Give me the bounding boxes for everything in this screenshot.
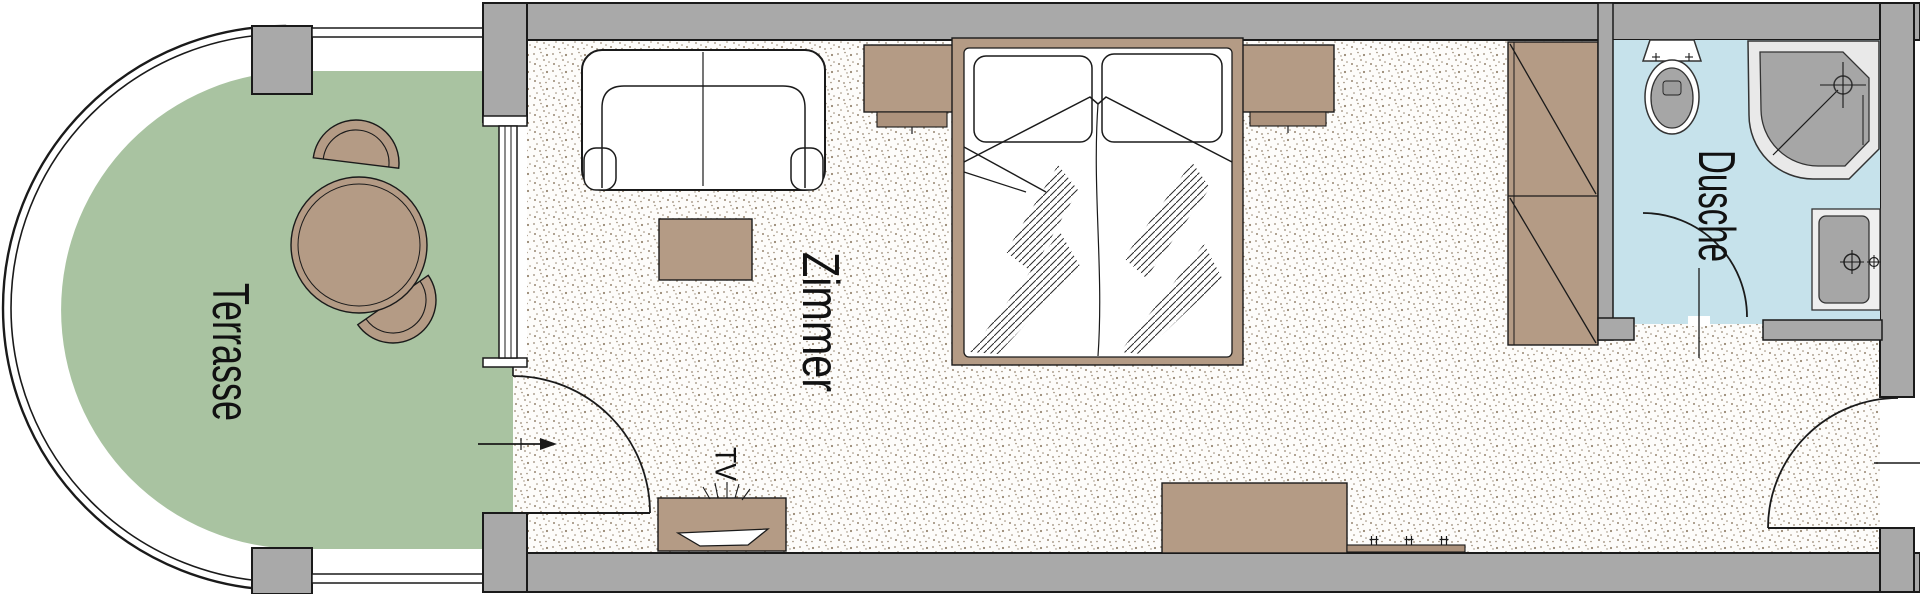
toilet: [1643, 40, 1701, 134]
nightstand-left: [864, 45, 960, 134]
bottom-wall: [483, 553, 1920, 592]
pillow-left: [974, 56, 1092, 142]
terrace: Terrasse: [3, 26, 513, 594]
west-pier-bottom: [483, 513, 527, 592]
terrace-label: Terrasse: [201, 283, 259, 421]
right-wall: [1880, 3, 1914, 397]
terrace-pier-bottom: [252, 548, 312, 594]
terrace-table: [291, 177, 427, 313]
sofa-armrest-right: [791, 148, 823, 190]
bath-partition-wall: [1598, 3, 1613, 340]
sofa: [582, 50, 825, 190]
top-wall: [483, 3, 1920, 40]
window-sill-bottom: [483, 358, 527, 367]
bathroom: Dusche: [1598, 3, 1882, 358]
toilet-tank: [1643, 40, 1701, 61]
terrace-pier-top: [252, 26, 312, 94]
wardrobe: [1508, 42, 1598, 345]
floor-plan: Terrasse: [0, 0, 1920, 594]
room-label: Zimmer: [791, 252, 849, 392]
right-pier-bottom: [1880, 528, 1914, 592]
floor-plan-svg: Terrasse: [0, 0, 1920, 594]
sofa-armrest-left: [584, 148, 616, 190]
window-sill-top: [483, 116, 527, 126]
sideboard: [1162, 483, 1347, 553]
tv-label: TV: [709, 447, 742, 481]
coffee-table: [659, 219, 752, 280]
bath-south-wall: [1763, 320, 1882, 340]
vanity: [1812, 209, 1881, 310]
terrace-railing-top: [312, 28, 483, 37]
toilet-flush-detail: [1663, 81, 1681, 95]
bed: [952, 38, 1243, 365]
bath-label: Dusche: [1687, 150, 1745, 262]
window-frame: [499, 126, 517, 358]
terrace-railing-bottom: [312, 574, 483, 583]
west-pier-top: [483, 3, 527, 122]
pillow-right: [1102, 54, 1222, 142]
bath-south-wall-stub: [1598, 318, 1634, 340]
nightstand-right: [1242, 45, 1334, 133]
toilet-seat: [1651, 68, 1693, 128]
shower: [1748, 41, 1879, 179]
